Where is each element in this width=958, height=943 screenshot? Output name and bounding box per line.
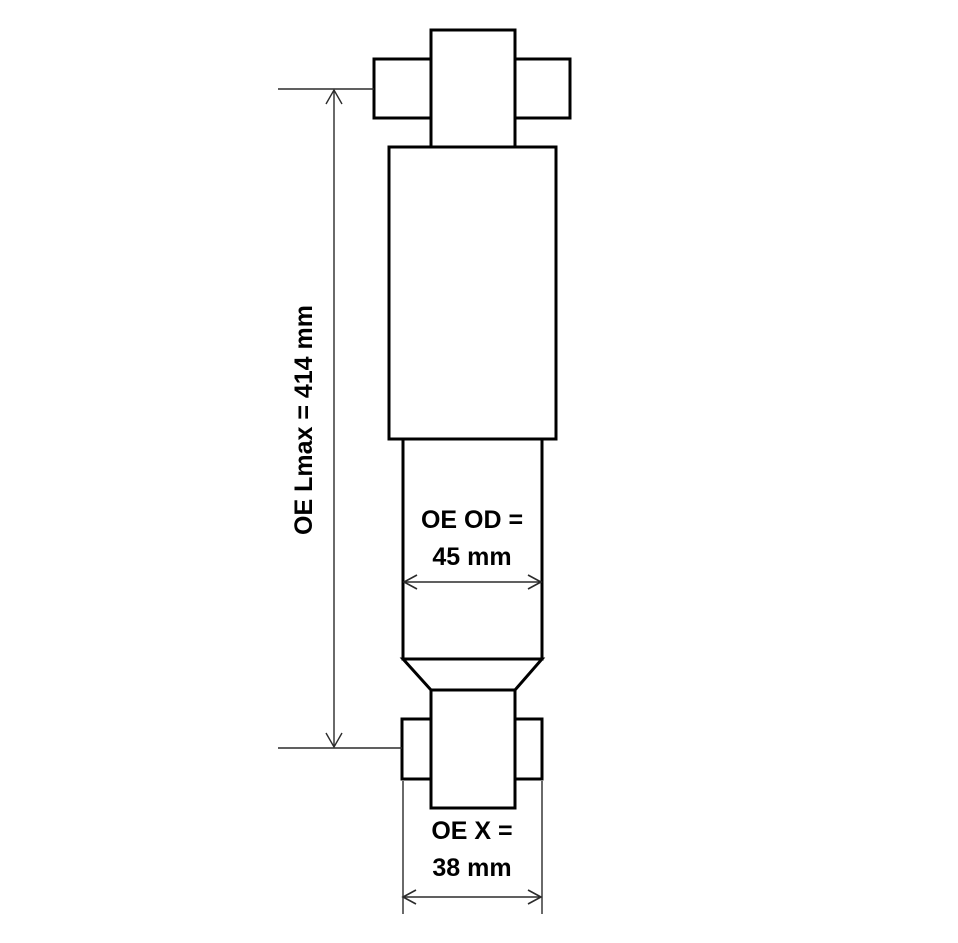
dust-cover-body	[389, 147, 556, 439]
lmax-label: OE Lmax = 414 mm	[290, 305, 318, 535]
od-label-line1: OE OD =	[421, 506, 523, 534]
x-label-line2: 38 mm	[432, 854, 511, 882]
top-mount-pin	[431, 30, 515, 148]
bottom-left-bushing	[402, 719, 431, 779]
lower-cone	[403, 659, 542, 690]
bottom-right-bushing	[515, 719, 542, 779]
diagram-canvas: OE Lmax = 414 mm OE OD = 45 mm OE X = 38…	[0, 0, 958, 943]
top-left-bushing	[374, 59, 431, 118]
top-right-bushing	[515, 59, 570, 118]
shock-absorber-dimension-diagram: OE Lmax = 414 mm OE OD = 45 mm OE X = 38…	[0, 0, 958, 943]
damper-outline	[374, 30, 570, 808]
x-label-line1: OE X =	[431, 817, 512, 845]
od-label-line2: 45 mm	[432, 543, 511, 571]
bottom-mount-pin	[431, 690, 515, 808]
